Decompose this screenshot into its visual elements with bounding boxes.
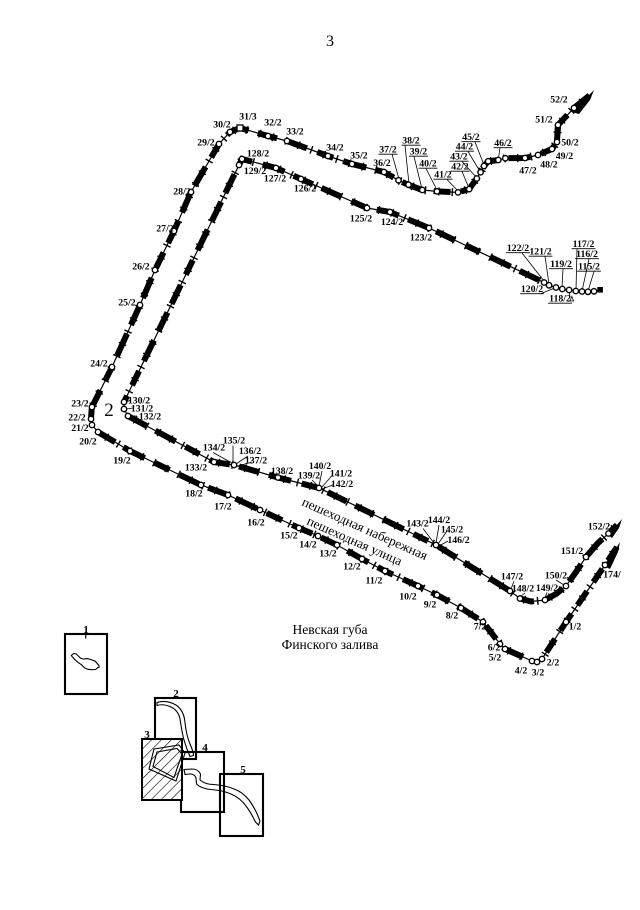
svg-text:19/2: 19/2 [113, 455, 131, 466]
svg-text:39/2: 39/2 [410, 146, 428, 157]
svg-text:37/2: 37/2 [379, 144, 397, 155]
svg-text:2: 2 [104, 400, 114, 421]
svg-text:145/2: 145/2 [441, 524, 463, 535]
svg-text:24/2: 24/2 [90, 358, 108, 369]
svg-text:129/2: 129/2 [244, 166, 266, 177]
svg-text:17/2: 17/2 [214, 501, 232, 512]
svg-text:10/2: 10/2 [399, 591, 417, 602]
svg-text:122/2: 122/2 [507, 243, 529, 254]
svg-text:148/2: 148/2 [512, 583, 534, 594]
svg-text:135/2: 135/2 [223, 435, 245, 446]
svg-text:50/2: 50/2 [561, 137, 579, 148]
svg-text:12/2: 12/2 [343, 561, 361, 572]
svg-text:36/2: 36/2 [373, 158, 391, 169]
svg-text:124/2: 124/2 [381, 217, 403, 228]
svg-text:23/2: 23/2 [71, 398, 89, 409]
svg-text:4/2: 4/2 [515, 665, 528, 676]
svg-text:149/2: 149/2 [536, 583, 558, 594]
svg-text:48/2: 48/2 [540, 159, 558, 170]
svg-text:52/2: 52/2 [550, 94, 568, 105]
svg-text:35/2: 35/2 [350, 150, 368, 161]
svg-text:51/2: 51/2 [535, 114, 553, 125]
svg-text:4: 4 [202, 742, 208, 754]
svg-text:142/2: 142/2 [331, 479, 353, 490]
svg-text:123/2: 123/2 [410, 232, 432, 243]
svg-text:3/2: 3/2 [532, 667, 545, 678]
svg-text:120/2: 120/2 [521, 284, 543, 295]
svg-text:42/2: 42/2 [451, 161, 469, 172]
svg-text:14/2: 14/2 [299, 539, 317, 550]
svg-text:11/2: 11/2 [366, 575, 383, 586]
svg-text:9/2: 9/2 [424, 599, 437, 610]
svg-text:3: 3 [326, 33, 334, 50]
svg-text:139/2: 139/2 [298, 470, 320, 481]
svg-text:128/2: 128/2 [247, 148, 269, 159]
svg-text:25/2: 25/2 [118, 297, 136, 308]
svg-text:31/3: 31/3 [239, 111, 257, 122]
svg-text:118/2: 118/2 [549, 293, 571, 304]
svg-text:137/2: 137/2 [245, 455, 267, 466]
svg-text:13/2: 13/2 [319, 548, 337, 559]
svg-text:141/2: 141/2 [330, 468, 352, 479]
svg-text:34/2: 34/2 [326, 142, 344, 153]
svg-text:29/2: 29/2 [197, 137, 215, 148]
svg-text:41/2: 41/2 [434, 169, 452, 180]
svg-text:Невская губа: Невская губа [293, 622, 368, 637]
svg-text:1/2: 1/2 [569, 621, 582, 632]
svg-text:140/2: 140/2 [309, 461, 331, 472]
svg-text:116/2: 116/2 [576, 249, 598, 260]
svg-text:119/2: 119/2 [550, 259, 572, 270]
svg-text:26/2: 26/2 [132, 261, 150, 272]
svg-text:115/2: 115/2 [578, 261, 600, 272]
svg-text:146/2: 146/2 [447, 535, 469, 546]
svg-text:150/2: 150/2 [545, 570, 567, 581]
svg-text:40/2: 40/2 [419, 158, 437, 169]
svg-text:133/2: 133/2 [185, 462, 207, 473]
svg-text:38/2: 38/2 [402, 135, 420, 146]
svg-text:152/2: 152/2 [588, 521, 610, 532]
svg-text:Финского залива: Финского залива [282, 637, 379, 652]
svg-text:127/2: 127/2 [264, 173, 286, 184]
svg-text:132/2: 132/2 [139, 411, 161, 422]
svg-text:3: 3 [144, 729, 150, 741]
svg-text:15/2: 15/2 [280, 530, 298, 541]
svg-text:47/2: 47/2 [519, 165, 537, 176]
svg-text:18/2: 18/2 [185, 488, 203, 499]
svg-text:30/2: 30/2 [213, 119, 231, 130]
svg-text:21/2: 21/2 [71, 423, 89, 434]
svg-text:121/2: 121/2 [529, 246, 551, 257]
svg-text:147/2: 147/2 [501, 571, 523, 582]
svg-text:5/2: 5/2 [489, 652, 502, 663]
svg-text:174/: 174/ [603, 569, 621, 580]
svg-text:7/2: 7/2 [474, 621, 487, 632]
svg-text:20/2: 20/2 [79, 436, 97, 447]
svg-text:143/2: 143/2 [406, 518, 428, 529]
svg-text:126/2: 126/2 [294, 183, 316, 194]
svg-text:49/2: 49/2 [556, 151, 574, 162]
svg-text:138/2: 138/2 [271, 466, 293, 477]
svg-text:8/2: 8/2 [446, 610, 459, 621]
svg-text:22/2: 22/2 [68, 412, 86, 423]
svg-text:125/2: 125/2 [350, 213, 372, 224]
svg-text:5: 5 [240, 764, 246, 776]
svg-text:32/2: 32/2 [264, 117, 282, 128]
svg-text:16/2: 16/2 [247, 517, 265, 528]
svg-text:2: 2 [173, 688, 179, 700]
svg-text:33/2: 33/2 [286, 126, 304, 137]
svg-text:28/2: 28/2 [173, 186, 191, 197]
svg-text:151/2: 151/2 [561, 546, 583, 557]
svg-text:27/2: 27/2 [156, 223, 174, 234]
svg-text:2/2: 2/2 [547, 657, 560, 668]
svg-text:46/2: 46/2 [494, 138, 512, 149]
